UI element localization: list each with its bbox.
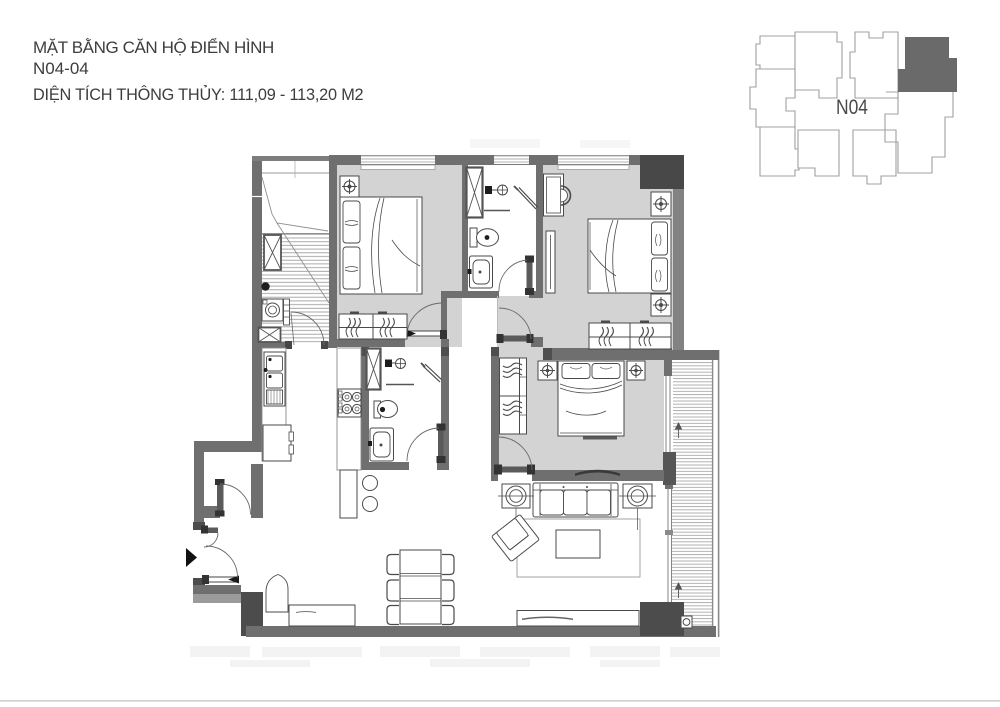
svg-text:DIỆN TÍCH THÔNG THỦY: 111,09 -: DIỆN TÍCH THÔNG THỦY: 111,09 - 113,20 M2 bbox=[33, 85, 364, 104]
svg-text:MẶT BẰNG CĂN HỘ ĐIỂN HÌNH: MẶT BẰNG CĂN HỘ ĐIỂN HÌNH bbox=[33, 38, 274, 57]
svg-text:N04-04: N04-04 bbox=[33, 59, 89, 78]
svg-text:N04: N04 bbox=[836, 96, 868, 119]
